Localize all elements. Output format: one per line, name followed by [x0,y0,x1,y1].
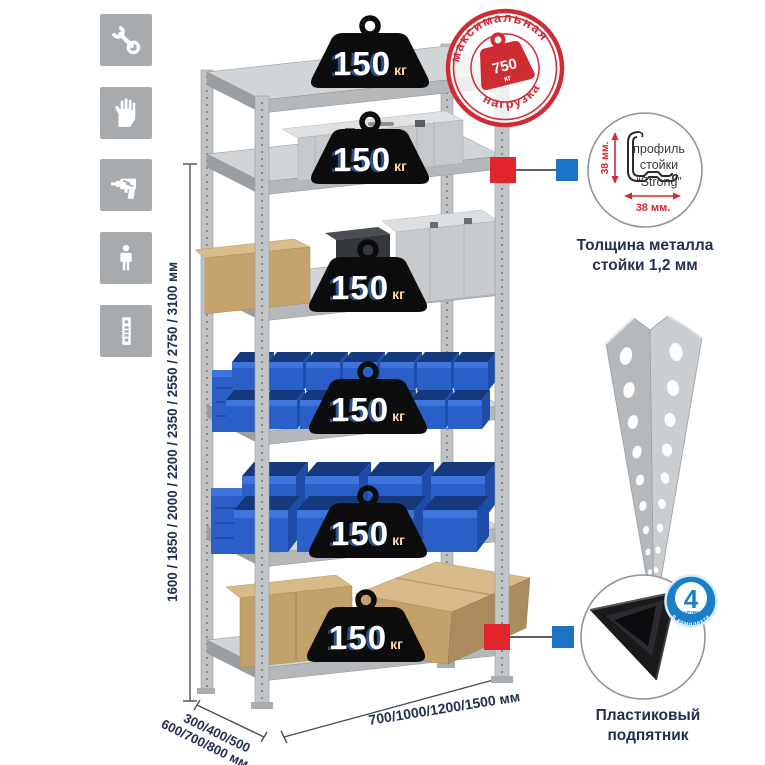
height-dimension [183,164,197,701]
foot-callout-connector [484,624,574,650]
profile-label-line3: “Strong” [636,175,681,189]
load-value: 150кг [300,515,436,553]
angle-post-image [606,316,702,620]
load-unit: кг [392,532,405,548]
blue-marker-top [556,159,578,181]
cardboard-box-shelf3 [195,239,310,314]
quantity-badge: 4 штуки в комплекте [666,576,717,628]
depth-dimension-label: 300/400/500 600/700/800 мм [159,703,258,765]
shelf-load-badge-1: 150кг [302,14,438,92]
load-number: 150 [331,515,389,552]
profile-dim-vertical: 38 мм. [599,141,611,174]
load-number: 150 [329,619,387,656]
load-value: 150кг [300,269,436,307]
load-unit: кг [392,408,405,424]
profile-caption-line2: стойки 1,2 мм [555,256,735,276]
height-dimension-label: 1600 / 1850 / 2000 / 2200 / 2350 / 2550 … [165,262,180,602]
foot-caption-line2: подпятник [558,726,738,746]
load-unit: кг [392,286,405,302]
width-dimension-label: 700/1000/1200/1500 мм [367,688,521,728]
shelf-load-badge-4: 150кг [300,360,436,438]
profile-dim-horizontal: 38 мм. [636,202,671,214]
load-value: 150кг [300,391,436,429]
load-unit: кг [394,62,407,78]
foot-caption: Пластиковый подпятник [558,706,738,747]
profile-caption-line1: Толщина металла [555,236,735,256]
profile-label-line2: стойки [640,158,678,172]
quantity-sub-label: штуки [684,610,698,615]
load-unit: кг [390,636,403,652]
profile-label-line1: профиль [633,142,685,156]
foot-caption-line1: Пластиковый [558,706,738,726]
shelf-load-badge-6: 150кг [298,588,434,666]
load-number: 150 [331,269,389,306]
load-value: 150кг [302,45,438,83]
shelf-load-badge-2: 150кг [302,110,438,188]
load-number: 150 [333,45,391,82]
shelf-load-badge-5: 150кг [300,484,436,562]
blue-marker-bottom [552,626,574,648]
load-value: 150кг [302,141,438,179]
load-value: 150кг [298,619,434,657]
red-marker-bottom [484,624,510,650]
load-unit: кг [394,158,407,174]
infographic-canvas: 1600 / 1850 / 2000 / 2200 / 2350 / 2550 … [0,0,765,765]
shelf-load-badge-3: 150кг [300,238,436,316]
profile-detail-circle: 38 мм. 38 мм. профиль стойки “Strong” [588,113,702,227]
profile-callout-connector [490,157,578,183]
profile-caption: Толщина металла стойки 1,2 мм [555,236,735,277]
load-number: 150 [331,391,389,428]
load-number: 150 [333,141,391,178]
red-marker-top [490,157,516,183]
